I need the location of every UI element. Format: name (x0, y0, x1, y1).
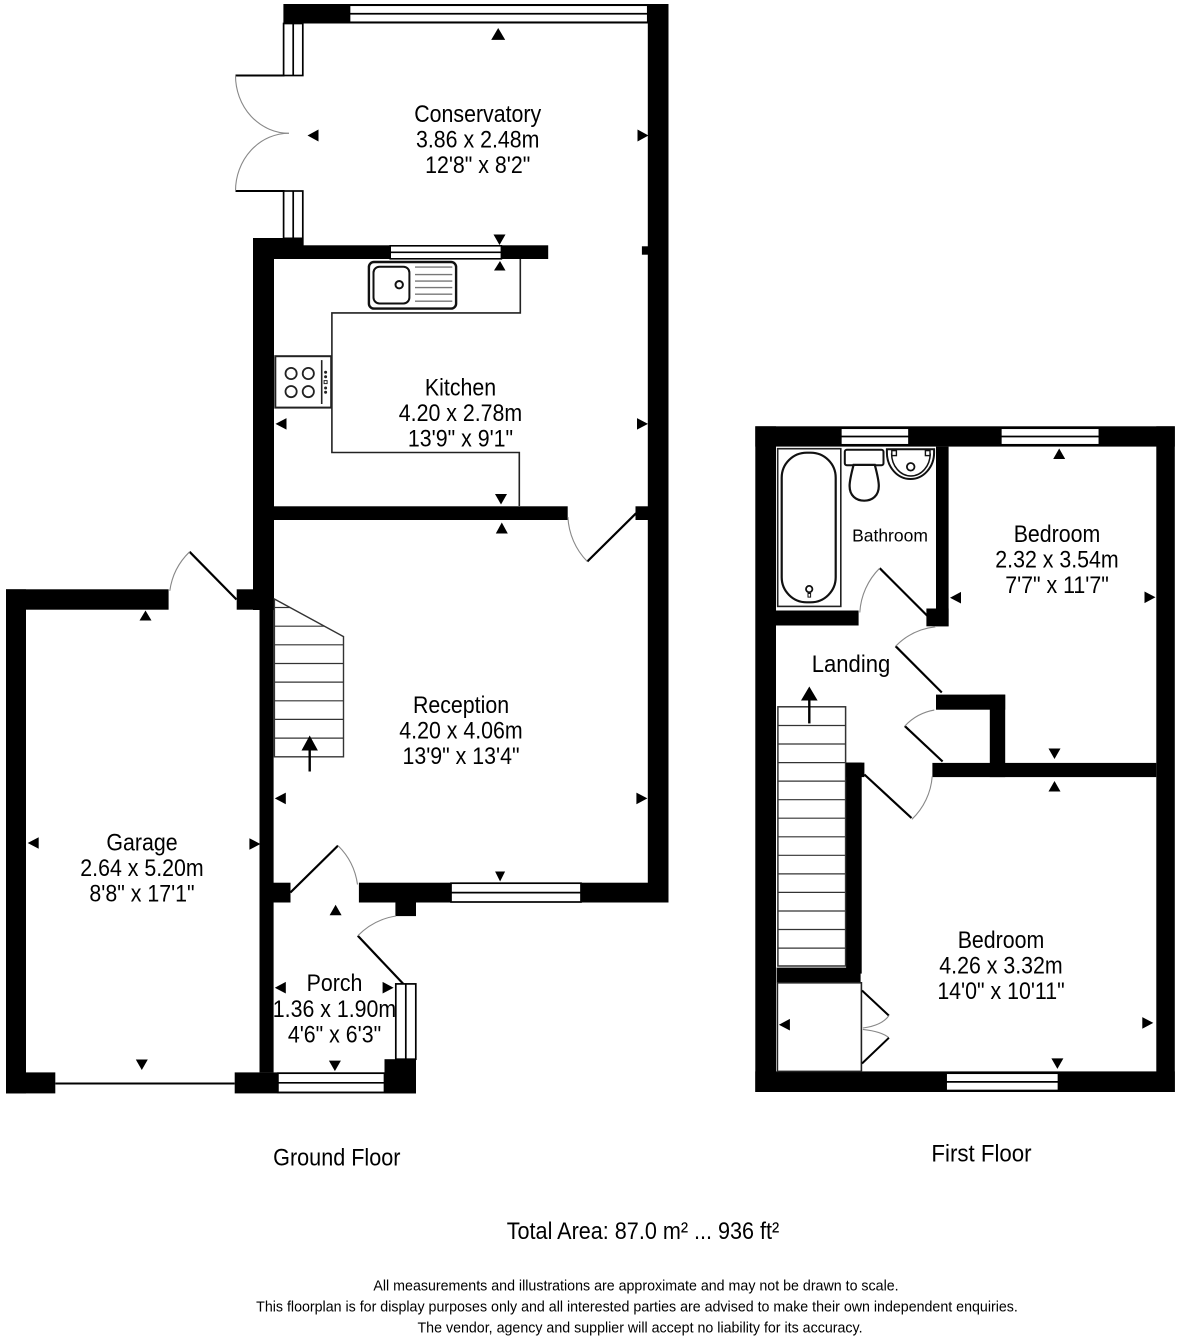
svg-text:This floorplan is for display: This floorplan is for display purposes o… (256, 1299, 1018, 1315)
svg-text:13'9" x 13'4": 13'9" x 13'4" (402, 742, 519, 769)
svg-text:All measurements and illustrat: All measurements and illustrations are a… (373, 1278, 898, 1294)
svg-text:12'8" x 8'2": 12'8" x 8'2" (425, 151, 530, 178)
svg-text:8'8" x 17'1": 8'8" x 17'1" (89, 880, 194, 907)
svg-text:Porch: Porch (307, 969, 363, 996)
svg-text:1.36 x 1.90m: 1.36 x 1.90m (273, 995, 396, 1022)
svg-text:7'7" x 11'7": 7'7" x 11'7" (1005, 571, 1109, 598)
svg-text:4.20 x 4.06m: 4.20 x 4.06m (399, 716, 522, 743)
svg-text:13'9" x 9'1": 13'9" x 9'1" (408, 424, 513, 451)
svg-text:Kitchen: Kitchen (425, 373, 496, 400)
svg-text:2.32 x 3.54m: 2.32 x 3.54m (995, 545, 1118, 572)
svg-text:2.64 x 5.20m: 2.64 x 5.20m (80, 854, 203, 881)
svg-text:Reception: Reception (413, 691, 509, 718)
svg-text:Landing: Landing (812, 650, 891, 677)
svg-text:The vendor, agency and supplie: The vendor, agency and supplier will acc… (417, 1320, 862, 1336)
svg-text:4'6" x 6'3": 4'6" x 6'3" (288, 1020, 381, 1047)
svg-text:Bathroom: Bathroom (852, 526, 928, 546)
svg-text:4.26 x 3.32m: 4.26 x 3.32m (939, 951, 1062, 978)
svg-text:3.86 x 2.48m: 3.86 x 2.48m (416, 125, 539, 152)
svg-text:4.20 x 2.78m: 4.20 x 2.78m (399, 399, 522, 426)
svg-text:14'0" x 10'11": 14'0" x 10'11" (937, 977, 1064, 1004)
svg-text:Garage: Garage (106, 829, 177, 856)
svg-text:Total Area: 87.0 m² ... 936 ft: Total Area: 87.0 m² ... 936 ft² (507, 1217, 780, 1244)
svg-text:Conservatory: Conservatory (414, 100, 542, 127)
svg-text:First Floor: First Floor (931, 1140, 1031, 1167)
svg-text:Bedroom: Bedroom (958, 926, 1045, 953)
svg-text:Bedroom: Bedroom (1014, 520, 1101, 547)
svg-text:Ground Floor: Ground Floor (273, 1143, 401, 1170)
